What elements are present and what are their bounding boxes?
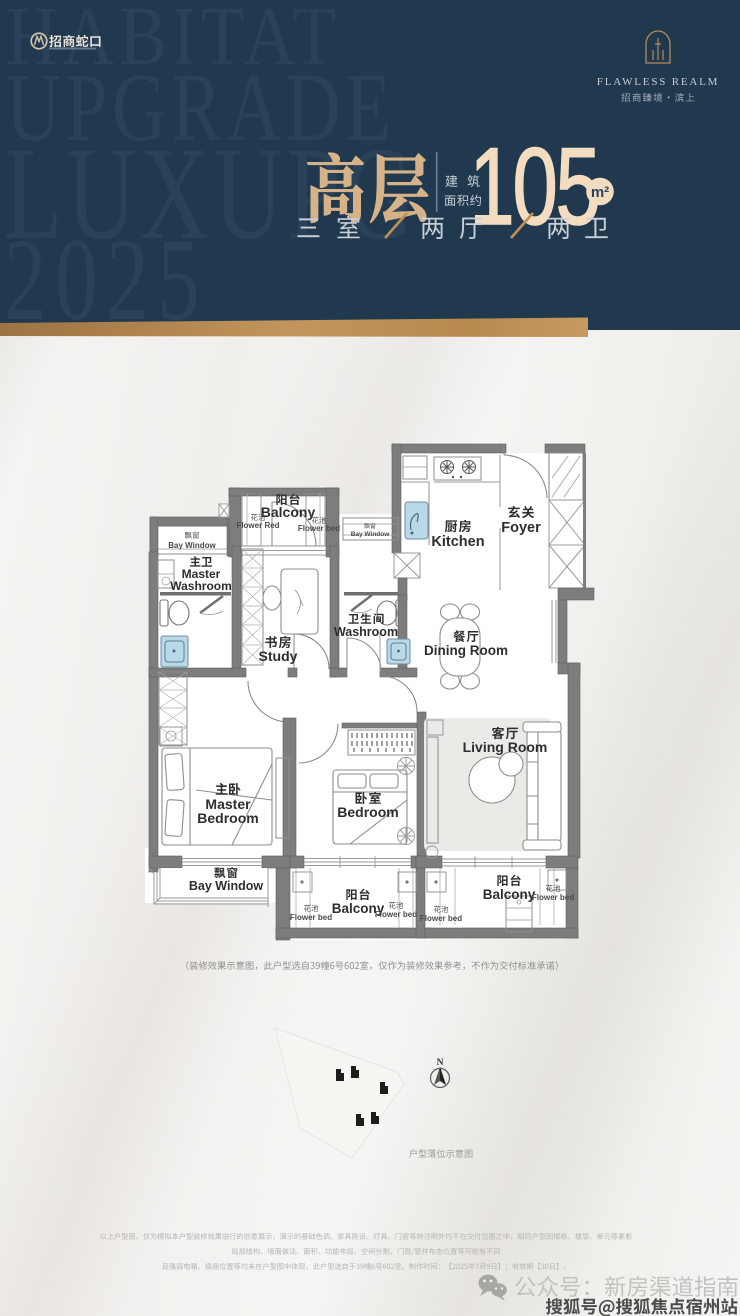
svg-text:Foyer: Foyer (501, 520, 541, 536)
svg-text:Flower bed: Flower bed (532, 893, 574, 902)
svg-text:FLAWLESS REALM: FLAWLESS REALM (597, 76, 719, 88)
svg-text:Flower bed: Flower bed (375, 910, 417, 919)
svg-text:Flower bed: Flower bed (298, 524, 340, 533)
svg-text:105: 105 (469, 124, 598, 248)
svg-text:Flower Red: Flower Red (236, 521, 279, 530)
svg-text:Washroom: Washroom (334, 625, 398, 639)
svg-text:Flower bed: Flower bed (290, 913, 332, 922)
svg-text:Balcony: Balcony (483, 887, 536, 902)
svg-text:N: N (437, 1058, 444, 1068)
svg-text:Bay Window: Bay Window (351, 531, 391, 538)
svg-text:Study: Study (259, 648, 298, 664)
svg-text:Bay Window: Bay Window (168, 541, 216, 550)
svg-text:Bay Window: Bay Window (189, 879, 263, 893)
svg-text:Dining Room: Dining Room (424, 643, 508, 658)
svg-text:Bedroom: Bedroom (197, 810, 258, 826)
svg-text:Kitchen: Kitchen (431, 534, 484, 550)
svg-text:Living Room: Living Room (463, 739, 548, 755)
svg-text:Flower bed: Flower bed (420, 914, 462, 923)
svg-text:m²: m² (591, 184, 609, 201)
svg-text:Washroom: Washroom (170, 579, 232, 593)
svg-text:Bedroom: Bedroom (337, 804, 398, 820)
svg-text:Balcony: Balcony (261, 504, 316, 520)
